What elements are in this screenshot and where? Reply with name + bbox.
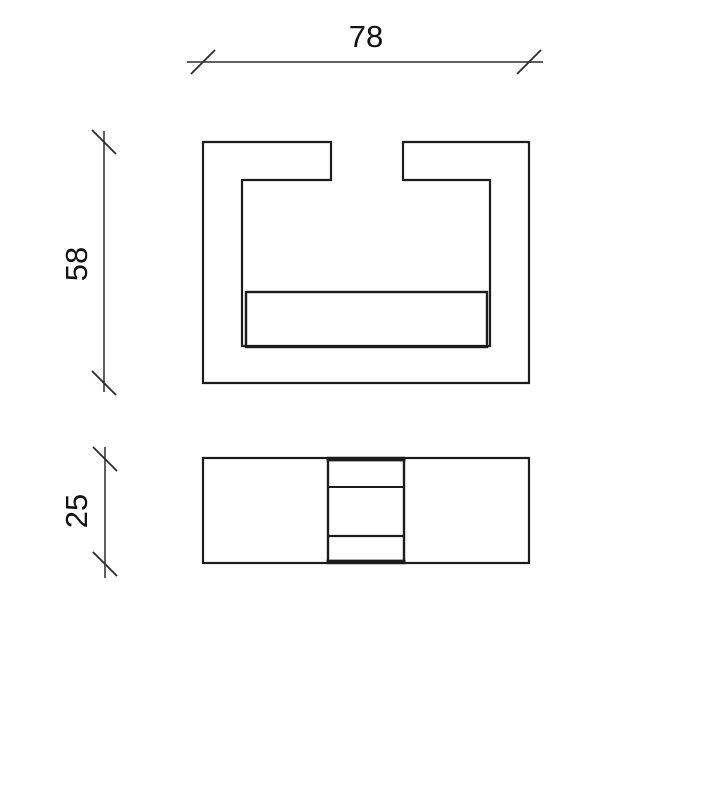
- dimension-value: 78: [349, 19, 383, 54]
- drawing-canvas: 78 58 25: [0, 0, 708, 800]
- front-view: [203, 142, 529, 383]
- dimension-depth: 25: [59, 447, 117, 578]
- bottom-view-outline: [203, 458, 529, 563]
- dimension-height: 58: [59, 130, 116, 395]
- dimension-width: 78: [187, 19, 543, 74]
- dimension-value: 25: [59, 494, 94, 528]
- dimension-value: 58: [59, 247, 94, 281]
- insert-plate: [246, 292, 487, 347]
- drawing-page: 78 58 25: [0, 0, 708, 800]
- bottom-view: [203, 458, 529, 563]
- center-block: [328, 458, 404, 563]
